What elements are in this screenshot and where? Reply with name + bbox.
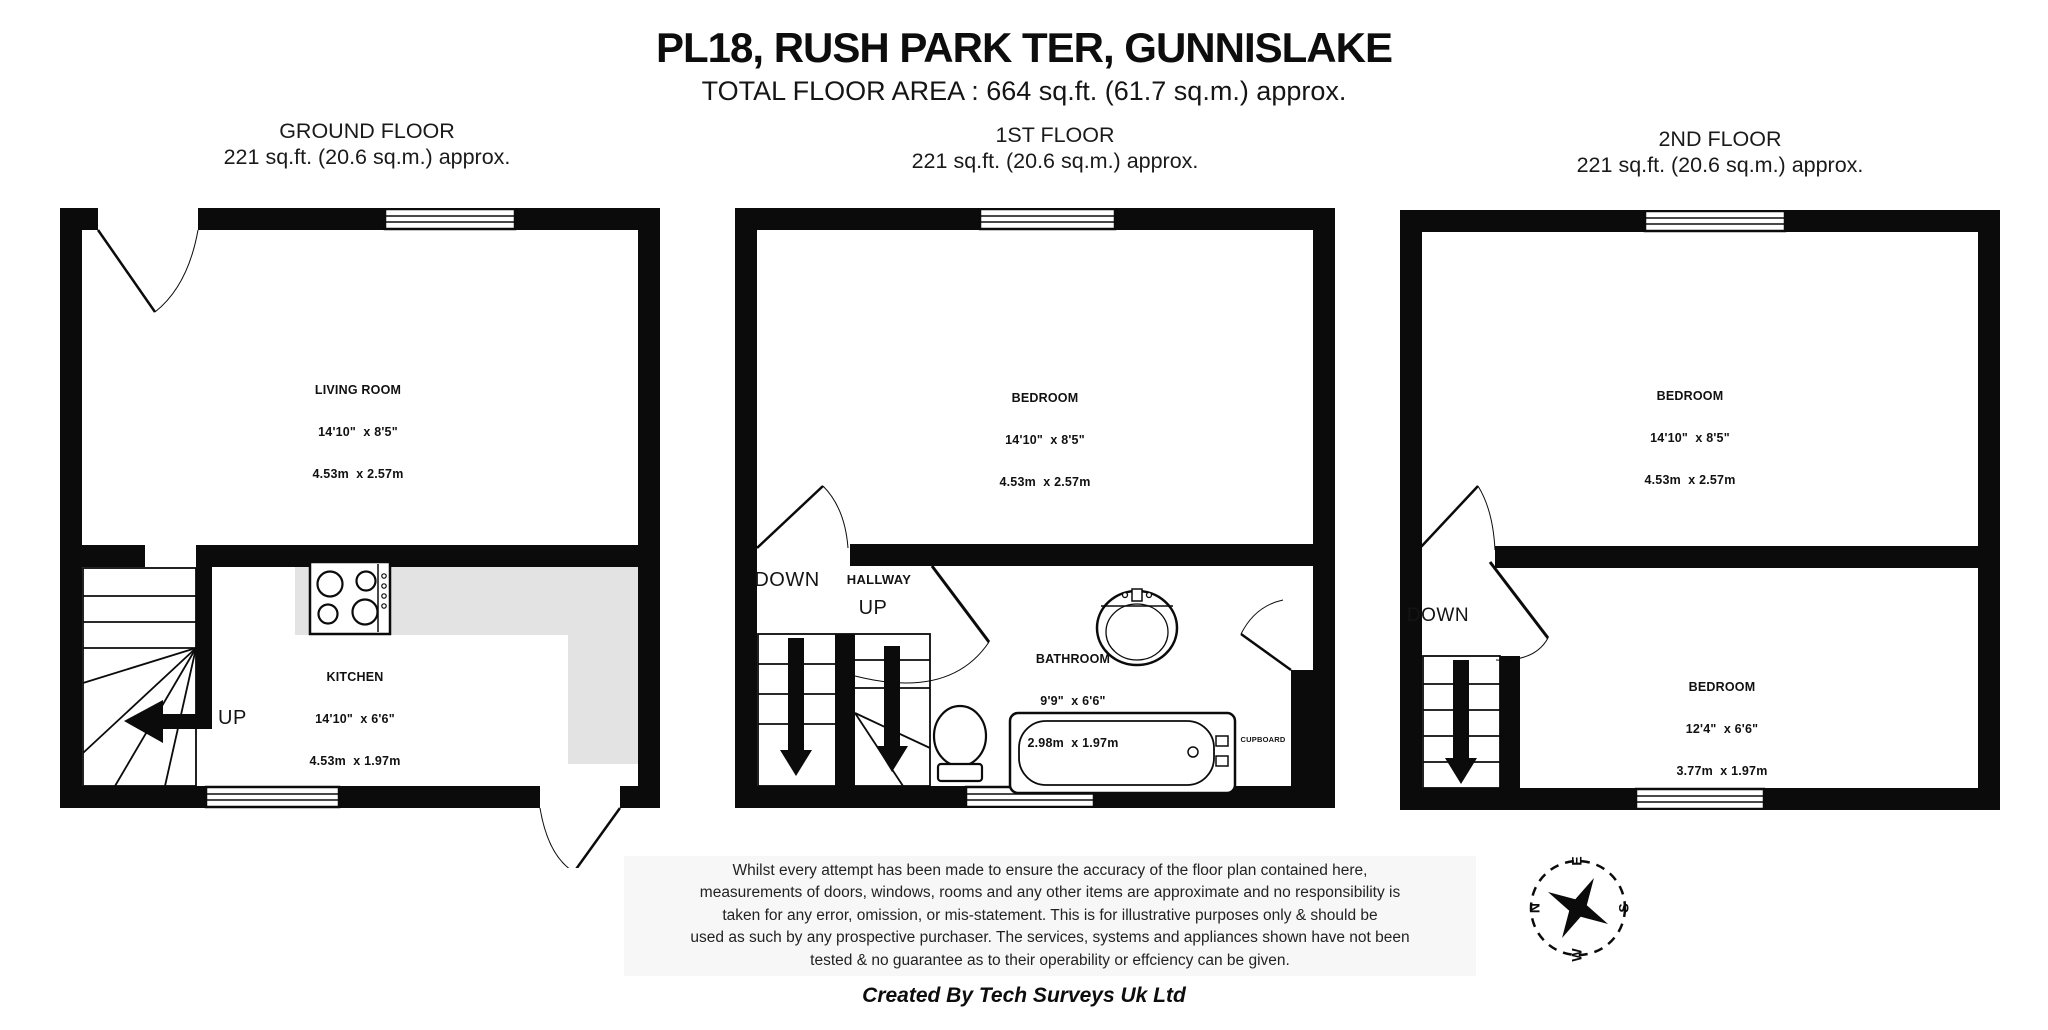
staircase <box>83 568 212 786</box>
first-floor-area: 221 sq.ft. (20.6 sq.m.) approx. <box>855 148 1255 174</box>
second-floor-area: 221 sq.ft. (20.6 sq.m.) approx. <box>1520 152 1920 178</box>
disclaimer-text: Whilst every attempt has been made to en… <box>624 856 1476 976</box>
bathroom-label: BATHROOM 9'9" x 6'6" 2.98m x 1.97m <box>973 624 1173 778</box>
window-icon <box>385 209 515 229</box>
second-floor-name: 2ND FLOOR <box>1520 126 1920 152</box>
door-icon <box>540 808 620 868</box>
ground-floor-name: GROUND FLOOR <box>167 118 567 144</box>
down-label-first: DOWN <box>747 569 827 592</box>
window-icon <box>980 209 1115 229</box>
staircase <box>1423 656 1500 788</box>
second-bedroom-top-label: BEDROOM 14'10" x 8'5" 4.53m x 2.57m <box>1590 361 1790 515</box>
total-floor-area: TOTAL FLOOR AREA : 664 sq.ft. (61.7 sq.m… <box>0 76 2048 107</box>
up-label-ground: UP <box>218 707 278 730</box>
floorplan-page: PL18, RUSH PARK TER, GUNNISLAKE TOTAL FL… <box>0 0 2048 1030</box>
cupboard-label: CUPBOARD <box>1223 735 1303 744</box>
compass-label-e: E <box>1569 856 1585 865</box>
ground-floor-header: GROUND FLOOR 221 sq.ft. (20.6 sq.m.) app… <box>167 118 567 170</box>
staircase <box>758 634 930 786</box>
down-arrow-icon <box>1445 660 1477 784</box>
stove-icon <box>310 562 390 634</box>
page-title: PL18, RUSH PARK TER, GUNNISLAKE <box>0 24 2048 72</box>
door-icon <box>757 486 848 548</box>
hallway-label: HALLWAY <box>824 572 934 587</box>
door-icon <box>98 230 198 312</box>
ground-floor-area: 221 sq.ft. (20.6 sq.m.) approx. <box>167 144 567 170</box>
down-label-second: DOWN <box>1398 605 1478 627</box>
down-arrow-icon <box>876 646 908 772</box>
compass-label-s: S <box>1616 903 1632 912</box>
compass-needle-star <box>1532 862 1624 954</box>
door-icon <box>1241 600 1291 670</box>
compass-label-n: N <box>1527 903 1543 913</box>
first-bedroom-label: BEDROOM 14'10" x 8'5" 4.53m x 2.57m <box>945 363 1145 517</box>
second-bedroom-bottom-label: BEDROOM 12'4" x 6'6" 3.77m x 1.97m <box>1622 652 1822 806</box>
door-icon <box>1490 562 1548 660</box>
window-icon <box>1645 211 1785 231</box>
second-floor-header: 2ND FLOOR 221 sq.ft. (20.6 sq.m.) approx… <box>1520 126 1920 178</box>
living-room-label: LIVING ROOM 14'10" x 8'5" 4.53m x 2.57m <box>258 355 458 509</box>
down-arrow-icon <box>780 638 812 776</box>
first-floor-name: 1ST FLOOR <box>855 122 1255 148</box>
up-label-first: UP <box>843 597 903 620</box>
credit-line: Created By Tech Surveys Uk Ltd <box>0 984 2048 1008</box>
first-floor-header: 1ST FLOOR 221 sq.ft. (20.6 sq.m.) approx… <box>855 122 1255 174</box>
door-icon <box>1420 486 1495 550</box>
compass-rose-icon: N E S W <box>1516 846 1640 970</box>
compass-label-w: W <box>1569 948 1585 962</box>
kitchen-label: KITCHEN 14'10" x 6'6" 4.53m x 1.97m <box>255 642 455 796</box>
